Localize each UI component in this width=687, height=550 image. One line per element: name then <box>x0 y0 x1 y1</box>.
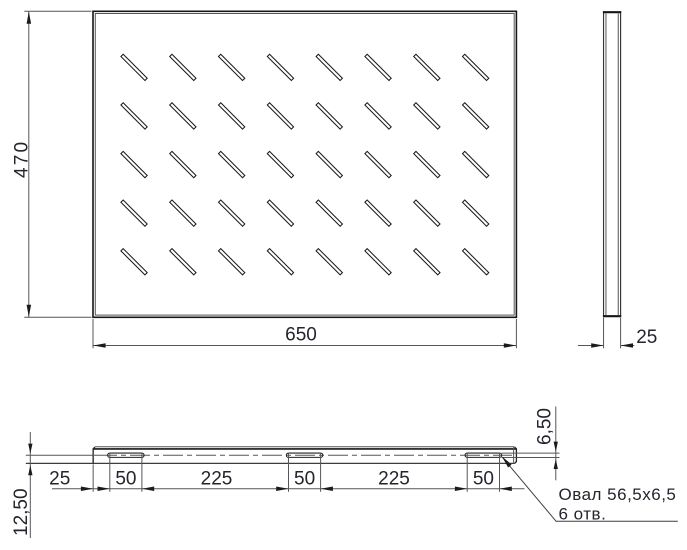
svg-text:225: 225 <box>378 469 410 490</box>
svg-text:50: 50 <box>115 469 136 490</box>
svg-text:50: 50 <box>294 469 315 490</box>
svg-text:225: 225 <box>201 469 233 490</box>
svg-text:25: 25 <box>49 469 70 490</box>
svg-text:12,50: 12,50 <box>11 488 32 536</box>
svg-text:650: 650 <box>285 324 317 345</box>
svg-text:25: 25 <box>636 327 657 348</box>
svg-text:6,50: 6,50 <box>535 408 556 445</box>
svg-text:6 отв.: 6 отв. <box>559 504 607 523</box>
svg-text:Овал 56,5х6,5: Овал 56,5х6,5 <box>559 485 677 504</box>
svg-text:470: 470 <box>11 140 32 178</box>
svg-text:50: 50 <box>473 469 494 490</box>
